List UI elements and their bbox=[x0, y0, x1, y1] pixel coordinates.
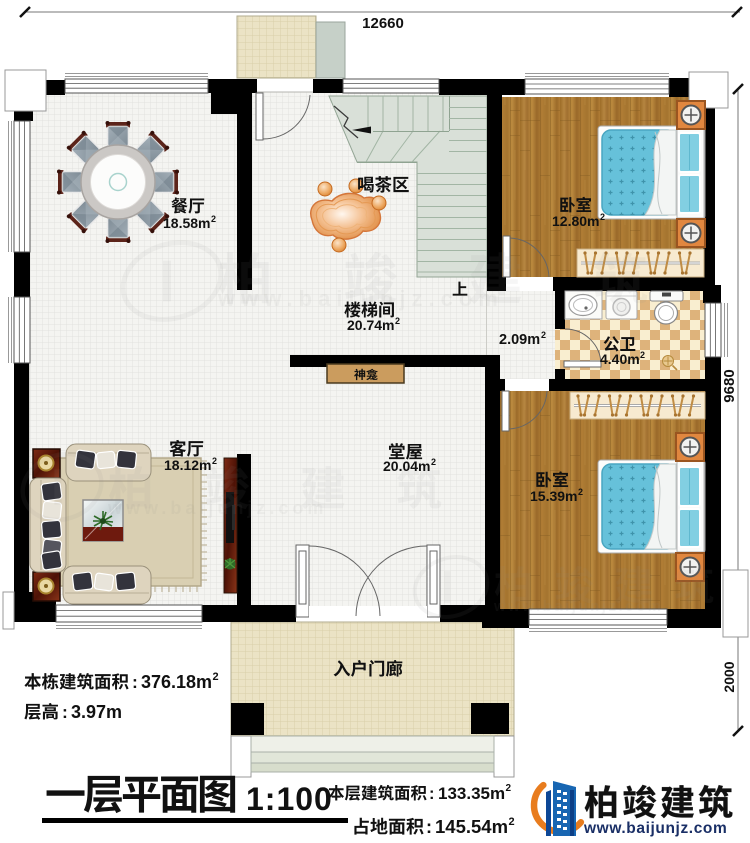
svg-text:2: 2 bbox=[395, 316, 400, 326]
svg-text:2: 2 bbox=[212, 456, 217, 466]
svg-text:www.baijunjz.com: www.baijunjz.com bbox=[493, 598, 663, 615]
svg-text::: : bbox=[132, 672, 138, 692]
svg-text:2: 2 bbox=[506, 783, 512, 794]
svg-text::: : bbox=[426, 817, 432, 837]
svg-text:15.39m: 15.39m bbox=[530, 488, 577, 504]
svg-text:2: 2 bbox=[431, 457, 436, 467]
svg-text:3.97m: 3.97m bbox=[71, 702, 122, 722]
svg-text::: : bbox=[62, 702, 68, 722]
svg-text:12660: 12660 bbox=[362, 15, 404, 32]
svg-text:4.40m: 4.40m bbox=[600, 351, 640, 367]
svg-text:www.baijunjz.com: www.baijunjz.com bbox=[583, 820, 727, 837]
svg-text:2000: 2000 bbox=[721, 661, 737, 692]
svg-text:www.baijunjz.com: www.baijunjz.com bbox=[107, 498, 327, 518]
svg-text:145.54m: 145.54m bbox=[435, 816, 508, 837]
svg-text:2: 2 bbox=[509, 816, 515, 828]
svg-text:20.04m: 20.04m bbox=[383, 458, 430, 474]
svg-text:9680: 9680 bbox=[721, 369, 738, 402]
svg-text:18.12m: 18.12m bbox=[164, 457, 211, 473]
svg-text:2: 2 bbox=[640, 350, 645, 360]
svg-text:2: 2 bbox=[541, 330, 546, 340]
svg-text:2: 2 bbox=[213, 671, 219, 683]
svg-text:2: 2 bbox=[578, 487, 583, 497]
svg-text:20.74m: 20.74m bbox=[347, 317, 394, 333]
svg-text:2.09m: 2.09m bbox=[499, 332, 540, 348]
svg-text:18.58m: 18.58m bbox=[163, 215, 210, 231]
svg-text:1:100: 1:100 bbox=[246, 781, 333, 817]
svg-text:www.baijunjz.com: www.baijunjz.com bbox=[217, 286, 504, 311]
svg-text::: : bbox=[429, 785, 435, 803]
svg-text:133.35m: 133.35m bbox=[438, 784, 505, 803]
svg-text:12.80m: 12.80m bbox=[552, 213, 599, 229]
svg-text:2: 2 bbox=[600, 212, 605, 222]
svg-text:376.18m: 376.18m bbox=[141, 672, 212, 692]
svg-text:2: 2 bbox=[211, 214, 216, 224]
